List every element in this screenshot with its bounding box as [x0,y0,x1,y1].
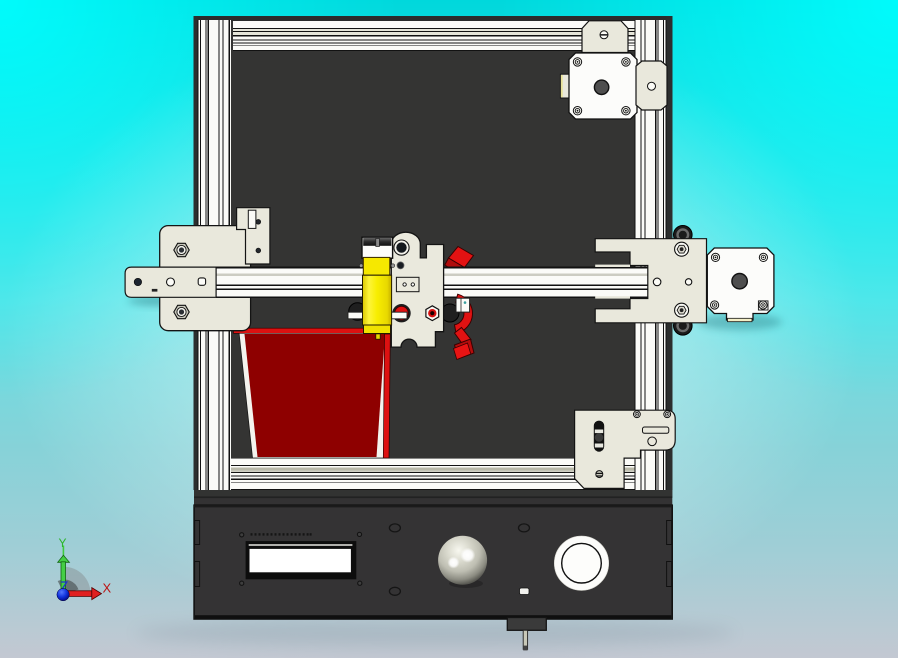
svg-text:Y: Y [59,536,67,550]
svg-text:X: X [103,581,112,596]
